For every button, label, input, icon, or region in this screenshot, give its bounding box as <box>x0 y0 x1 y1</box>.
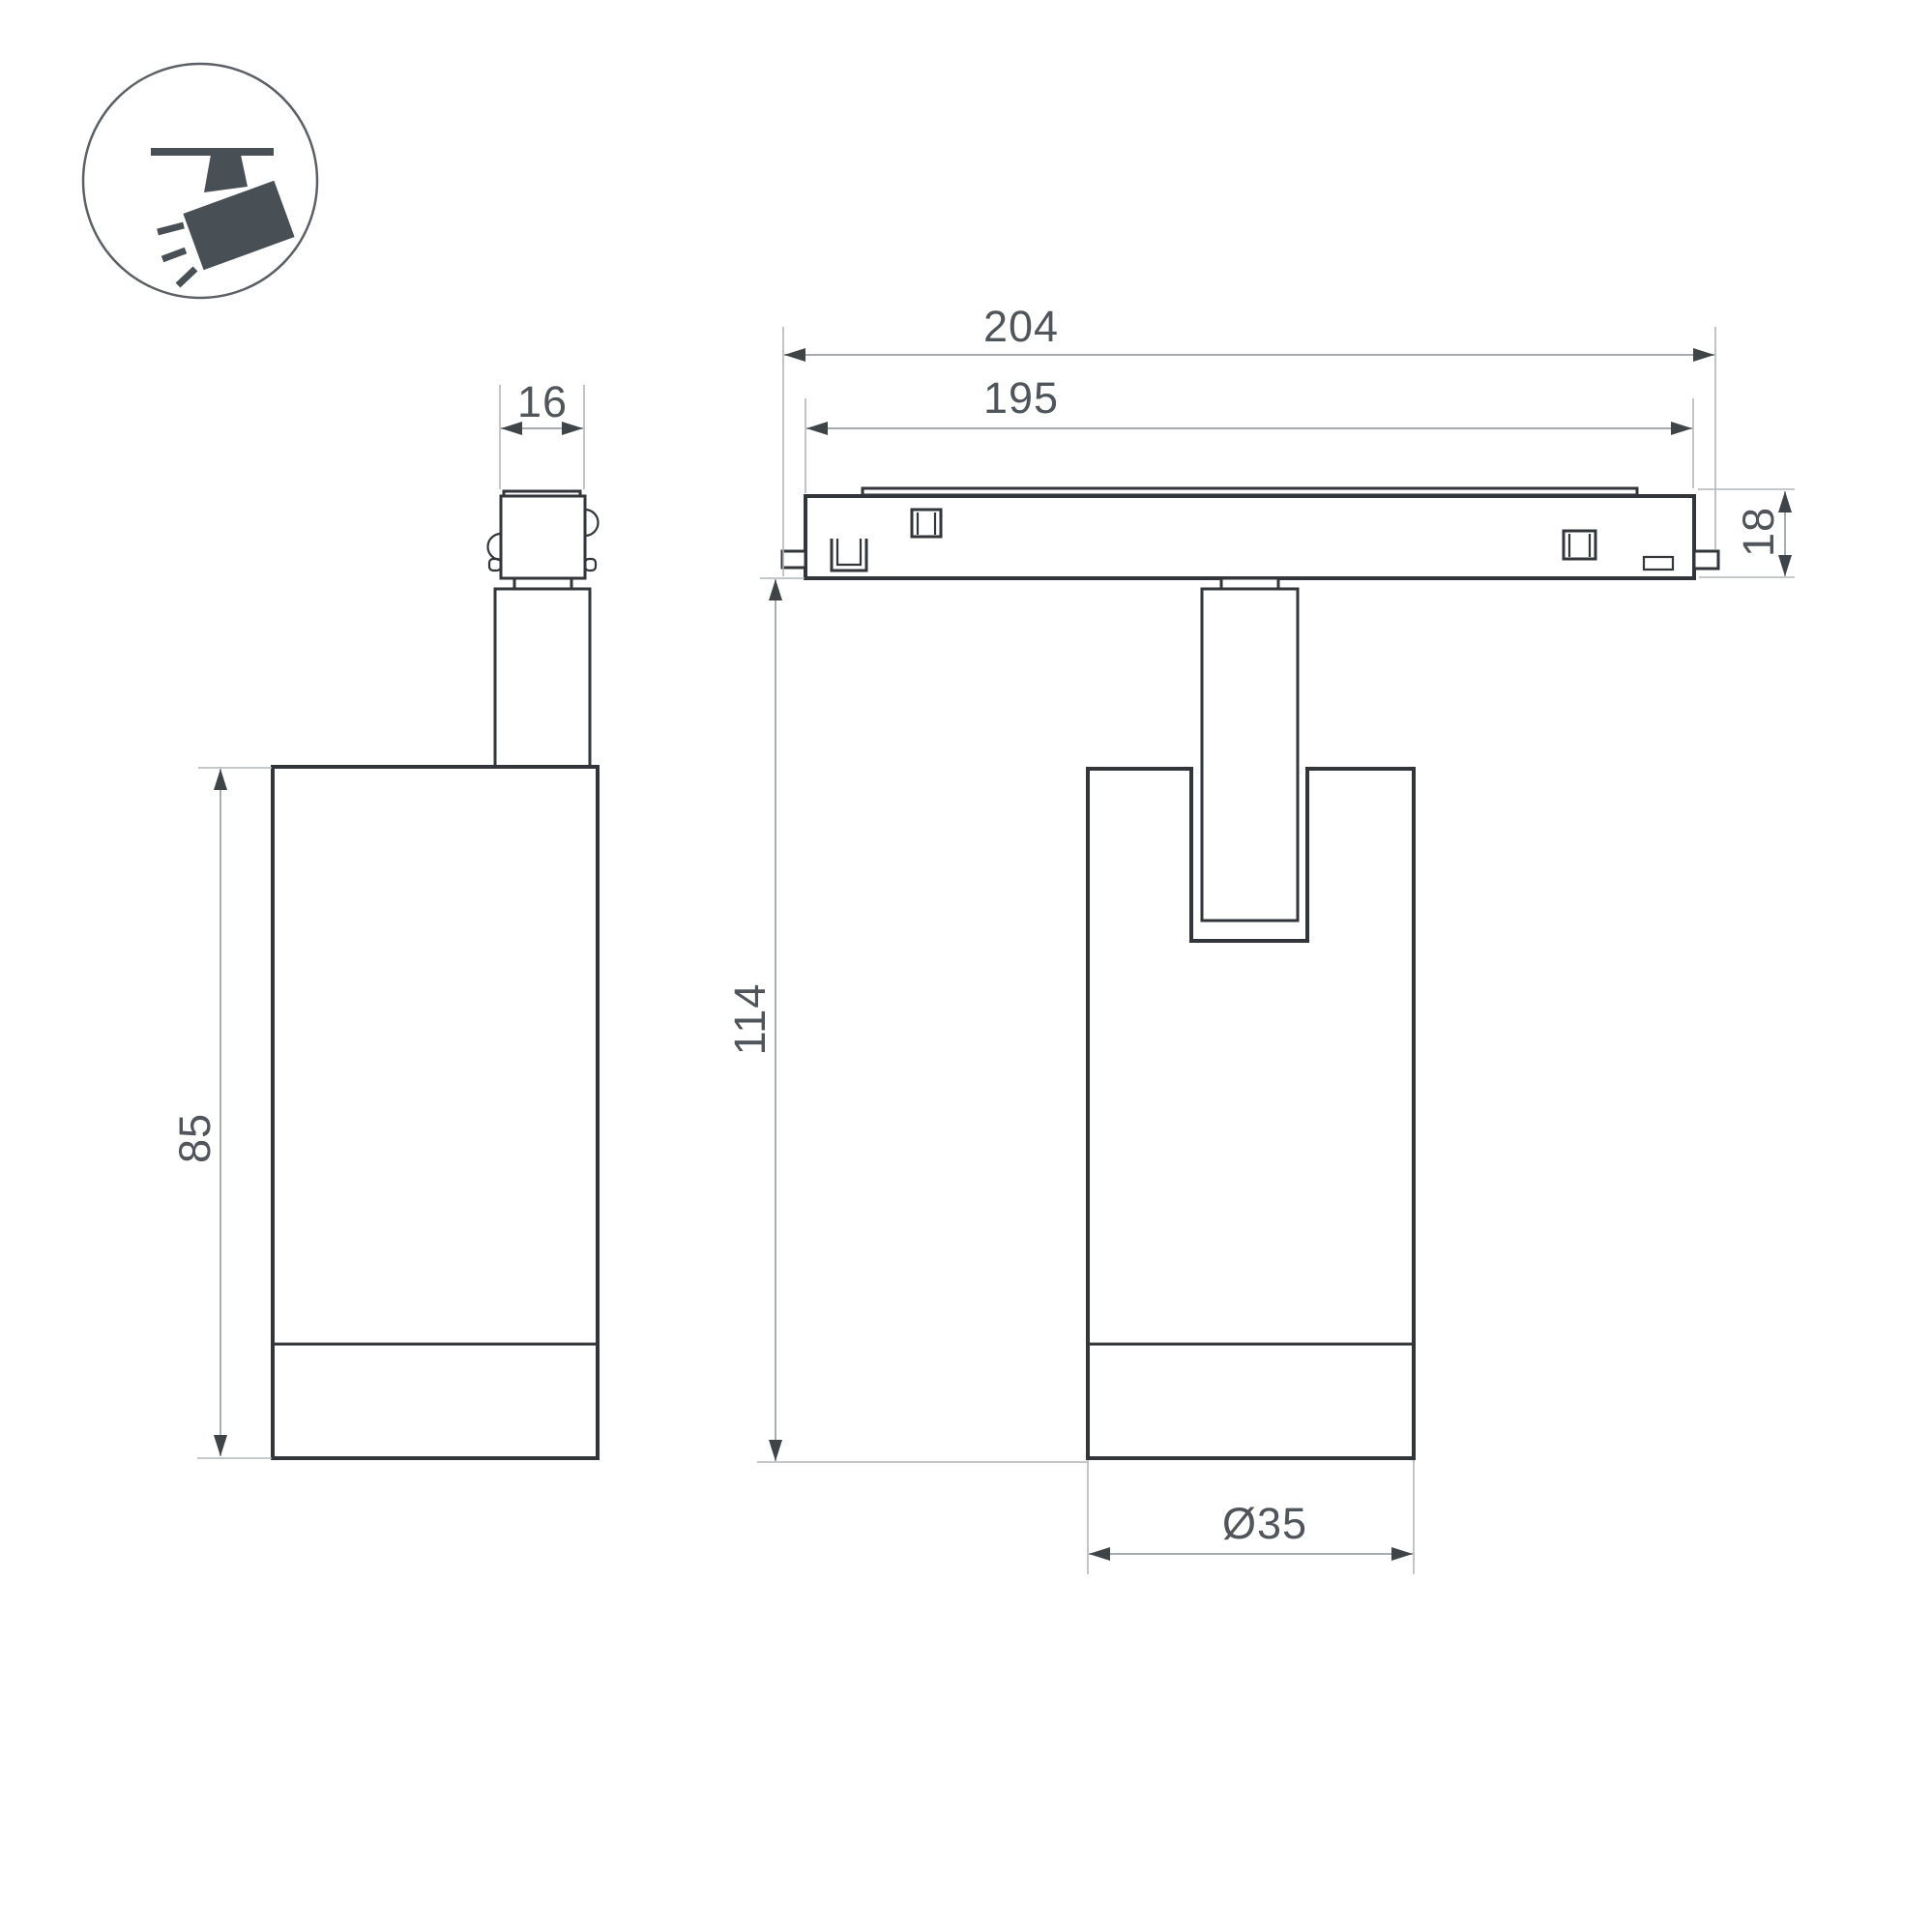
dimension-label-track-outer: 204 <box>983 302 1059 351</box>
arrowhead-icon <box>1089 1547 1110 1561</box>
dimension-label-body-height: 85 <box>170 1113 220 1163</box>
lamp-body <box>273 767 598 1458</box>
arrowhead-icon <box>214 1435 227 1456</box>
dimension-label-track-inner: 195 <box>983 373 1059 423</box>
track-contact-block <box>912 510 941 537</box>
swivel-neck <box>514 578 571 589</box>
adapter-lug <box>487 534 501 560</box>
arrowhead-icon <box>1671 422 1692 435</box>
dimension-label-total-height: 114 <box>725 983 775 1056</box>
front-view <box>782 488 1718 1458</box>
stem <box>1202 589 1298 921</box>
arrowhead-icon <box>1391 1547 1413 1561</box>
track-end-tab <box>1694 551 1718 569</box>
dimension-adapter-width: 16 <box>500 377 584 489</box>
arrowhead-icon <box>1693 348 1714 362</box>
dimension-label-adapter-width: 16 <box>517 377 568 426</box>
stem-coupler <box>1221 578 1278 589</box>
track-end-tab <box>782 551 805 568</box>
arrowhead-icon <box>214 769 227 790</box>
dimension-total-height: 114 <box>725 578 1087 1462</box>
arrowhead-icon <box>1778 555 1792 576</box>
dimension-body-diameter: Ø35 <box>1088 1460 1414 1574</box>
arrowhead-icon <box>769 1440 782 1461</box>
track-top-lip <box>863 488 1637 495</box>
track-spotlight-icon <box>83 64 317 298</box>
dimension-label-body-diameter: Ø35 <box>1222 1499 1307 1548</box>
arrowhead-icon <box>784 348 805 362</box>
side-view <box>273 491 599 1458</box>
dimension-label-track-height: 18 <box>1734 507 1783 557</box>
arrowhead-icon <box>806 422 828 435</box>
dimension-drawing-canvas: 16 85 204 195 18 114 <box>0 0 1932 1932</box>
ceiling-line-icon <box>151 148 274 156</box>
mount-stem-icon <box>204 155 248 192</box>
stem <box>495 589 590 767</box>
dimension-body-height: 85 <box>170 768 272 1458</box>
adapter-latch <box>489 559 501 571</box>
icon-circle <box>83 64 317 298</box>
track-adapter <box>501 496 585 578</box>
dimension-track-inner: 195 <box>805 373 1693 493</box>
adapter-lug <box>585 510 599 536</box>
arrowhead-icon <box>769 579 782 600</box>
adapter-latch <box>585 559 596 571</box>
